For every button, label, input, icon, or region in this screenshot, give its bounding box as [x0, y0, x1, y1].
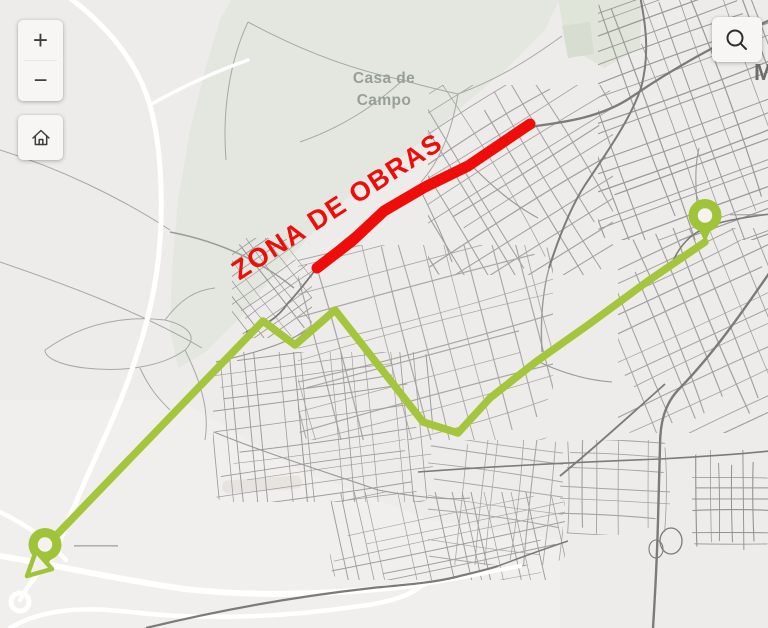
pin-hole — [698, 208, 712, 222]
search-button[interactable] — [712, 17, 762, 62]
map-app: Casa de Campo ZONA DE OBRAS M + − — [0, 0, 768, 628]
search-icon — [724, 27, 750, 53]
zoom-in-button[interactable]: + — [18, 20, 63, 60]
road-label-squiggle — [730, 214, 762, 215]
home-button[interactable] — [18, 115, 63, 160]
zoom-out-button[interactable]: − — [18, 61, 63, 101]
edge-city-label: M — [754, 59, 768, 85]
road-label-squiggle — [74, 545, 118, 547]
park-label-line1: Casa de — [353, 70, 415, 87]
zoom-control: + − — [18, 20, 63, 101]
home-icon — [29, 126, 53, 150]
park-label-line2: Campo — [357, 92, 412, 109]
map-canvas[interactable]: Casa de Campo ZONA DE OBRAS M — [0, 0, 768, 628]
pin-hole — [38, 537, 52, 551]
